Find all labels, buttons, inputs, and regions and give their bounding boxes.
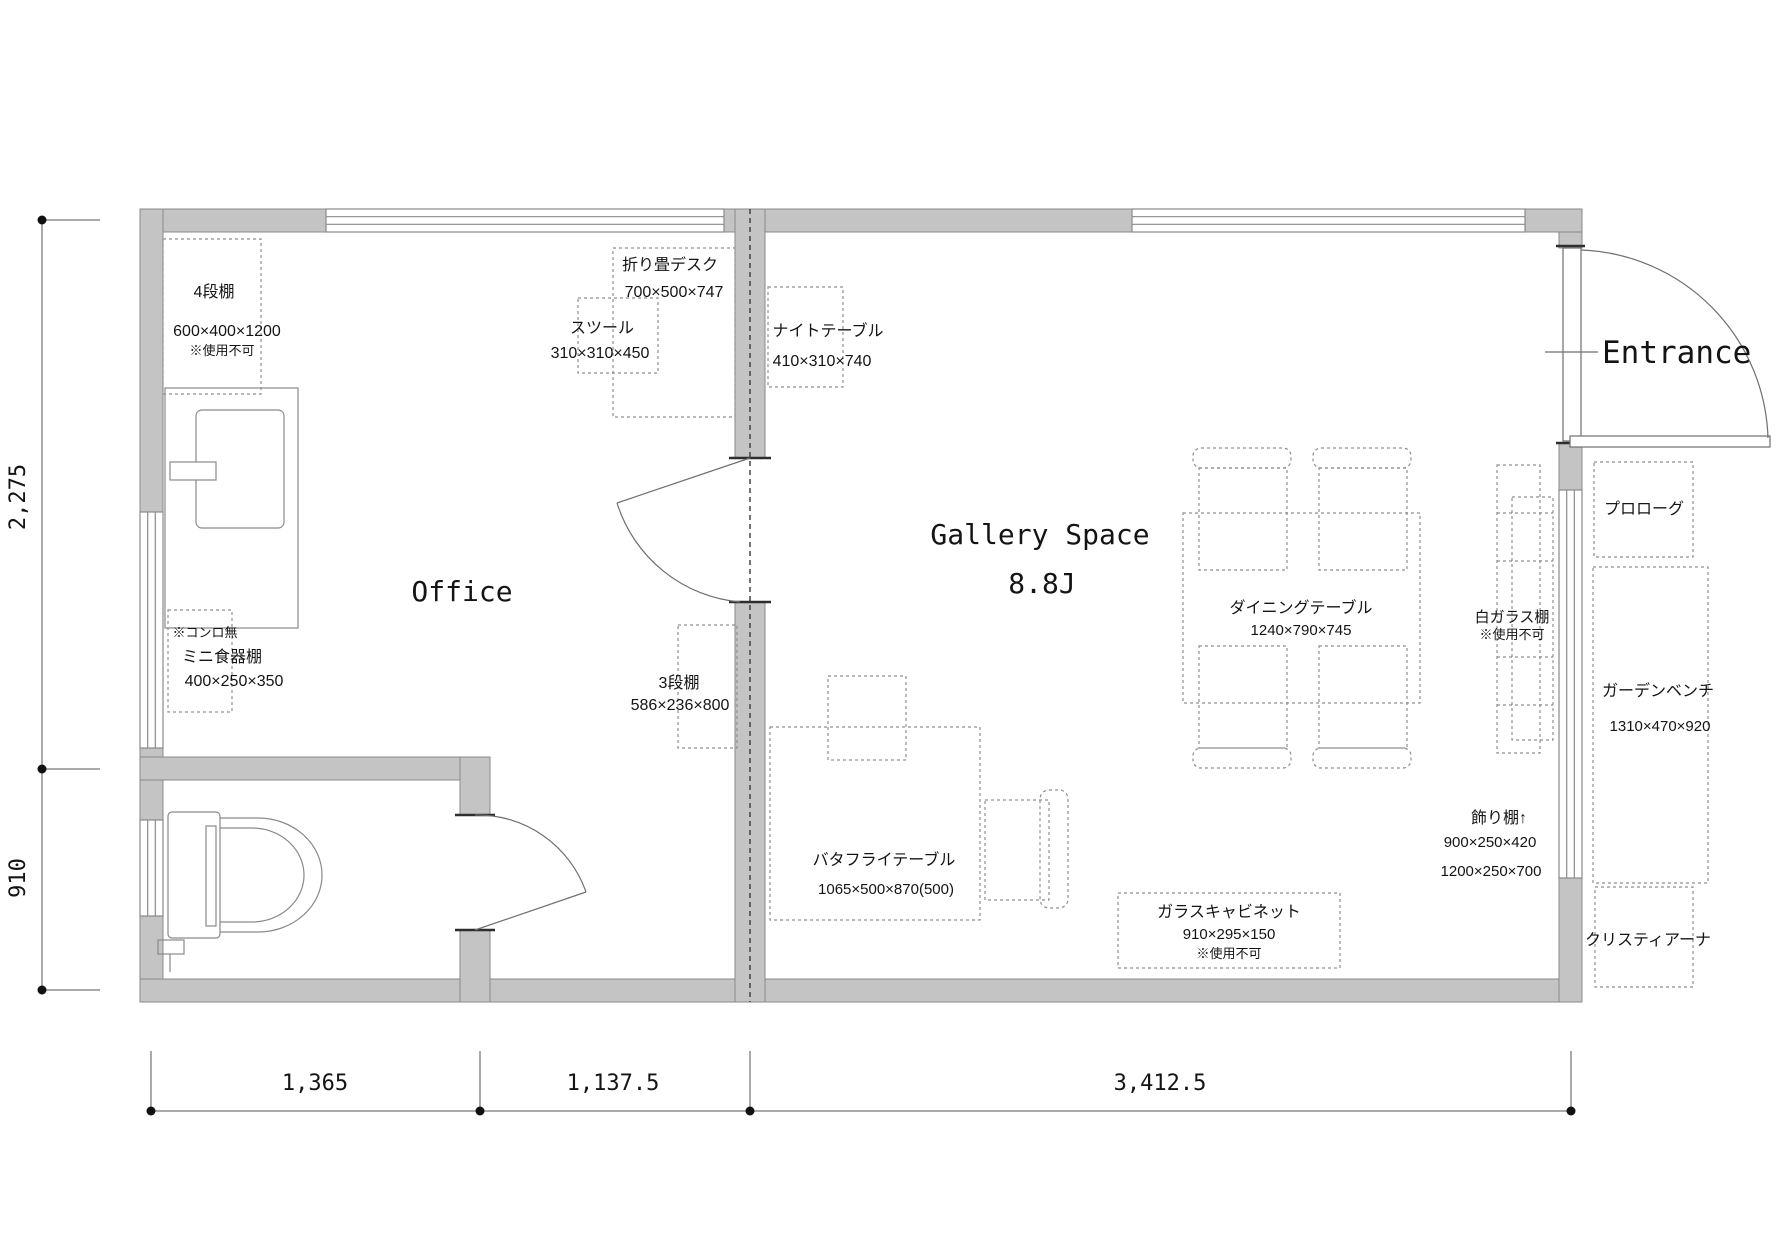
- shelf4-name: 4段棚: [194, 283, 235, 301]
- dining-name: ダイニングテーブル: [1229, 598, 1372, 617]
- dim-bottom-2: 1,137.5: [567, 1071, 660, 1096]
- butterfly-side-box: [828, 676, 906, 760]
- toilet-bowl: [220, 818, 322, 932]
- butterfly-chair-back: [1040, 790, 1068, 908]
- dining-chair4-seat: [1319, 646, 1407, 748]
- wall-top-left: [140, 209, 326, 232]
- shelf4-note: ※使用不可: [189, 343, 254, 358]
- dining-dims: 1240×790×745: [1251, 622, 1352, 639]
- stool-dims: 310×310×450: [551, 345, 650, 362]
- wall-toilet-top: [140, 757, 490, 780]
- shelf4-box: [163, 239, 261, 394]
- wall-toilet-right-upper: [460, 757, 490, 815]
- dim-bottom-1: 1,365: [282, 1071, 348, 1096]
- office-door: [617, 458, 750, 602]
- butterfly-name: バタフライテーブル: [813, 850, 956, 869]
- window-top-right: [1132, 209, 1525, 232]
- dining-chair3-back: [1193, 748, 1291, 768]
- shelf3-dims: 586×236×800: [631, 697, 730, 714]
- dining-chair3-seat: [1199, 646, 1287, 748]
- white-glass-shelf-note: ※使用不可: [1479, 627, 1544, 642]
- butterfly-dims: 1065×500×870(500): [818, 881, 954, 898]
- stool-name: スツール: [570, 320, 634, 337]
- garden-bench-name: ガーデンベンチ: [1602, 681, 1714, 700]
- wall-top-entrance-corner: [1525, 209, 1582, 232]
- christiana-name: クリスティアーナ: [1585, 931, 1711, 949]
- night-table-name: ナイトテーブル: [772, 321, 883, 340]
- shelf4-dims: 600×400×1200: [173, 323, 281, 340]
- toilet-door: [475, 815, 586, 930]
- furniture-labels: 4段棚 600×400×1200 ※使用不可 折り畳デスク 700×500×74…: [172, 255, 1714, 961]
- dim-left-top: 2,275: [6, 464, 31, 530]
- display-shelf-dims1: 900×250×420: [1444, 834, 1537, 851]
- dining-chair2-back: [1313, 448, 1411, 468]
- floor-plan-drawing: Office Gallery Space 8.8J Entrance 4段棚 6…: [0, 0, 1782, 1260]
- wall-right-upper: [1559, 443, 1582, 490]
- toilet-tank: [168, 812, 220, 938]
- window-left-upper: [140, 512, 163, 748]
- kitchen-unit: [165, 388, 298, 628]
- folding-desk-name: 折り畳デスク: [622, 255, 718, 274]
- toilet-fixture: [158, 812, 322, 972]
- white-glass-shelf-name: 白ガラス棚: [1475, 609, 1550, 626]
- entrance-label: Entrance: [1602, 335, 1751, 371]
- night-table-dims: 410×310×740: [773, 353, 872, 370]
- glass-cabinet-dims: 910×295×150: [1183, 926, 1276, 943]
- window-top-left: [326, 209, 724, 232]
- mini-cupboard-name: ミニ食器棚: [182, 648, 262, 666]
- gallery-size-label: 8.8J: [1008, 567, 1075, 600]
- display-shelf-name: 飾り棚↑: [1471, 809, 1527, 827]
- wall-top-center: [724, 209, 1132, 232]
- windows: [140, 209, 1582, 916]
- prologue-name: プロローグ: [1604, 500, 1684, 518]
- display-shelf-dims2: 1200×250×700: [1441, 863, 1542, 880]
- wall-left-upper: [140, 209, 163, 512]
- shelf3-name: 3段棚: [659, 674, 700, 692]
- wall-right-lower: [1559, 878, 1582, 1002]
- wall-toilet-right-lower: [460, 930, 490, 1002]
- window-left-lower: [140, 820, 163, 916]
- dining-chair4-back: [1313, 748, 1411, 768]
- dining-chair2-seat: [1319, 468, 1407, 570]
- dim-left-bottom: 910: [6, 858, 31, 898]
- dim-bottom-3: 3,412.5: [1114, 1071, 1207, 1096]
- glass-cabinet-name: ガラスキャビネット: [1157, 903, 1301, 921]
- toilet-bowl-inner: [220, 828, 304, 922]
- mini-cupboard-dims: 400×250×350: [185, 673, 284, 690]
- garden-bench-dims: 1310×470×920: [1610, 718, 1711, 735]
- kitchen-faucet: [170, 462, 216, 480]
- dining-chair1-back: [1193, 448, 1291, 468]
- wall-bottom: [140, 979, 1582, 1002]
- gallery-label: Gallery Space: [930, 518, 1149, 551]
- toilet-lid-seam: [206, 826, 216, 926]
- dining-chair1-seat: [1199, 468, 1287, 570]
- glass-cabinet-note: ※使用不可: [1196, 946, 1261, 961]
- window-right: [1559, 490, 1582, 878]
- mini-cupboard-note: ※コンロ無: [172, 625, 237, 640]
- office-label: Office: [411, 575, 512, 608]
- floor-plan-page: Office Gallery Space 8.8J Entrance 4段棚 6…: [0, 0, 1782, 1260]
- room-labels: Office Gallery Space 8.8J Entrance: [411, 335, 1751, 608]
- folding-desk-dims: 700×500×747: [625, 284, 724, 301]
